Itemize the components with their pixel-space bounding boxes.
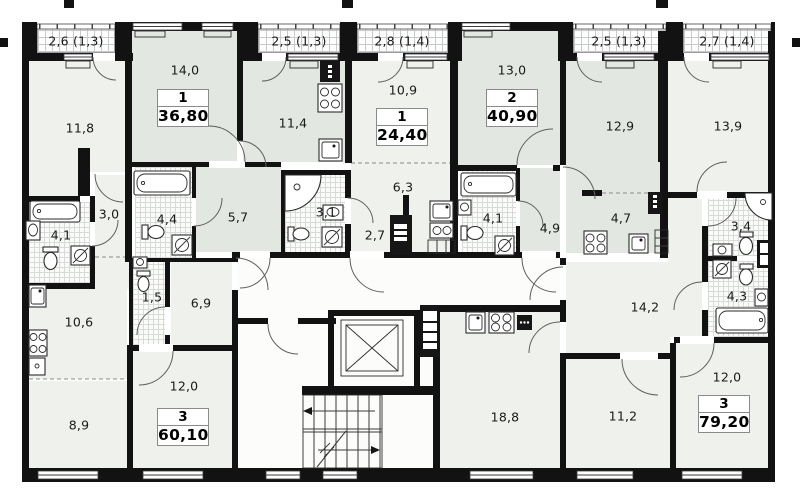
room-area-label: 11,8 (66, 121, 95, 136)
room-area-label: 1,5 (142, 290, 162, 305)
toilet-icon (288, 227, 309, 241)
floor-plan: 2,6 (1,3) 2,5 (1,3) 2,8 (1,4) 2,5 (1,3) … (0, 0, 800, 502)
room-area-label: 6,9 (191, 296, 211, 311)
stove-icon (318, 84, 342, 112)
room-area-label: 14,0 (171, 63, 200, 78)
room-area-label: 11,2 (609, 409, 638, 424)
room-area-label: 18,8 (491, 410, 520, 425)
room-area-label: 4,1 (483, 211, 503, 226)
balcony-label-5: 2,7 (1,4) (699, 34, 754, 49)
bathtub-icon (716, 308, 768, 333)
kitchen-sink-icon (430, 201, 453, 221)
apartment-number: 2 (487, 90, 537, 107)
stove-icon (430, 223, 453, 238)
apartment-area: 40,90 (487, 107, 537, 126)
toilet-icon (740, 232, 754, 255)
balcony-label-3: 2,8 (1,4) (374, 34, 429, 49)
room-area-label: 12,0 (170, 379, 199, 394)
room-area-label: 4,7 (611, 211, 631, 226)
sink-icon (713, 244, 732, 256)
oven-icon (29, 358, 45, 375)
toilet-icon (137, 271, 150, 292)
room-area-label: 13,0 (498, 63, 527, 78)
washing-machine-icon (495, 236, 514, 255)
washing-machine-icon (71, 246, 90, 265)
room-area-label: 11,4 (279, 116, 308, 131)
room-area-label: 4,9 (540, 221, 560, 236)
room-area-label: 5,7 (228, 210, 248, 225)
room-area-label: 4,4 (157, 212, 177, 227)
apartment-card-24-40: 1 24,40 (376, 108, 428, 146)
apartment-area: 24,40 (377, 126, 427, 145)
apartment-card-79-20: 3 79,20 (698, 395, 750, 433)
apartment-card-60-10: 3 60,10 (157, 408, 209, 446)
shower-icon (745, 193, 772, 220)
sink-icon (458, 200, 471, 215)
apartment-number: 1 (158, 90, 208, 107)
balcony-label-1: 2,6 (1,3) (48, 34, 103, 49)
room-area-label: 13,9 (714, 119, 743, 134)
room-area-label: 4,1 (51, 228, 71, 243)
toilet-icon (142, 225, 164, 239)
room-area-label: 10,9 (389, 83, 418, 98)
bathtub-icon (30, 201, 80, 222)
balcony-label-2: 2,5 (1,3) (271, 34, 326, 49)
apartment-number: 3 (158, 409, 208, 426)
sink-icon (133, 257, 147, 268)
room-area-label: 3,0 (99, 207, 119, 222)
apartment-card-36-80: 1 36,80 (157, 89, 209, 127)
washing-machine-icon (172, 235, 192, 255)
bathtub-icon (134, 171, 190, 195)
balcony-label-4: 2,5 (1,3) (591, 34, 646, 49)
bidet-icon (740, 264, 754, 285)
stove-icon (489, 312, 514, 333)
room-area-label: 3,4 (731, 219, 751, 234)
apartment-area: 60,10 (158, 426, 208, 445)
room-area-label: 2,7 (365, 228, 385, 243)
stove-icon (584, 231, 607, 254)
toilet-icon (43, 247, 58, 270)
kitchen-sink-icon (466, 312, 485, 333)
washing-machine-icon (322, 227, 342, 247)
washing-machine-icon (713, 260, 731, 278)
sink-icon (26, 221, 40, 240)
kitchen-sink-icon (319, 139, 342, 161)
apartment-card-40-90: 2 40,90 (486, 89, 538, 127)
bathtub-icon (461, 173, 516, 196)
apartment-area: 36,80 (158, 107, 208, 126)
sink-icon (755, 289, 768, 306)
room-area-label: 8,9 (69, 418, 89, 433)
room-area-label: 6,3 (393, 180, 413, 195)
room-area-label: 12,0 (713, 370, 742, 385)
apartment-number: 1 (377, 109, 427, 126)
kitchen-sink-icon (629, 234, 648, 253)
room-area-label: 4,3 (727, 289, 747, 304)
cooker-hood-icon (517, 315, 532, 330)
room-area-label: 10,6 (65, 315, 94, 330)
stove-icon (29, 330, 47, 356)
room-area-label: 12,9 (606, 119, 635, 134)
floor-plan-drawing (0, 0, 800, 502)
toilet-icon (461, 226, 483, 240)
apartment-area: 79,20 (699, 413, 749, 432)
room-area-label: 14,2 (631, 300, 660, 315)
apartment-number: 3 (699, 396, 749, 413)
kitchen-sink-icon (29, 285, 46, 307)
room-area-label: 3,1 (316, 205, 336, 220)
